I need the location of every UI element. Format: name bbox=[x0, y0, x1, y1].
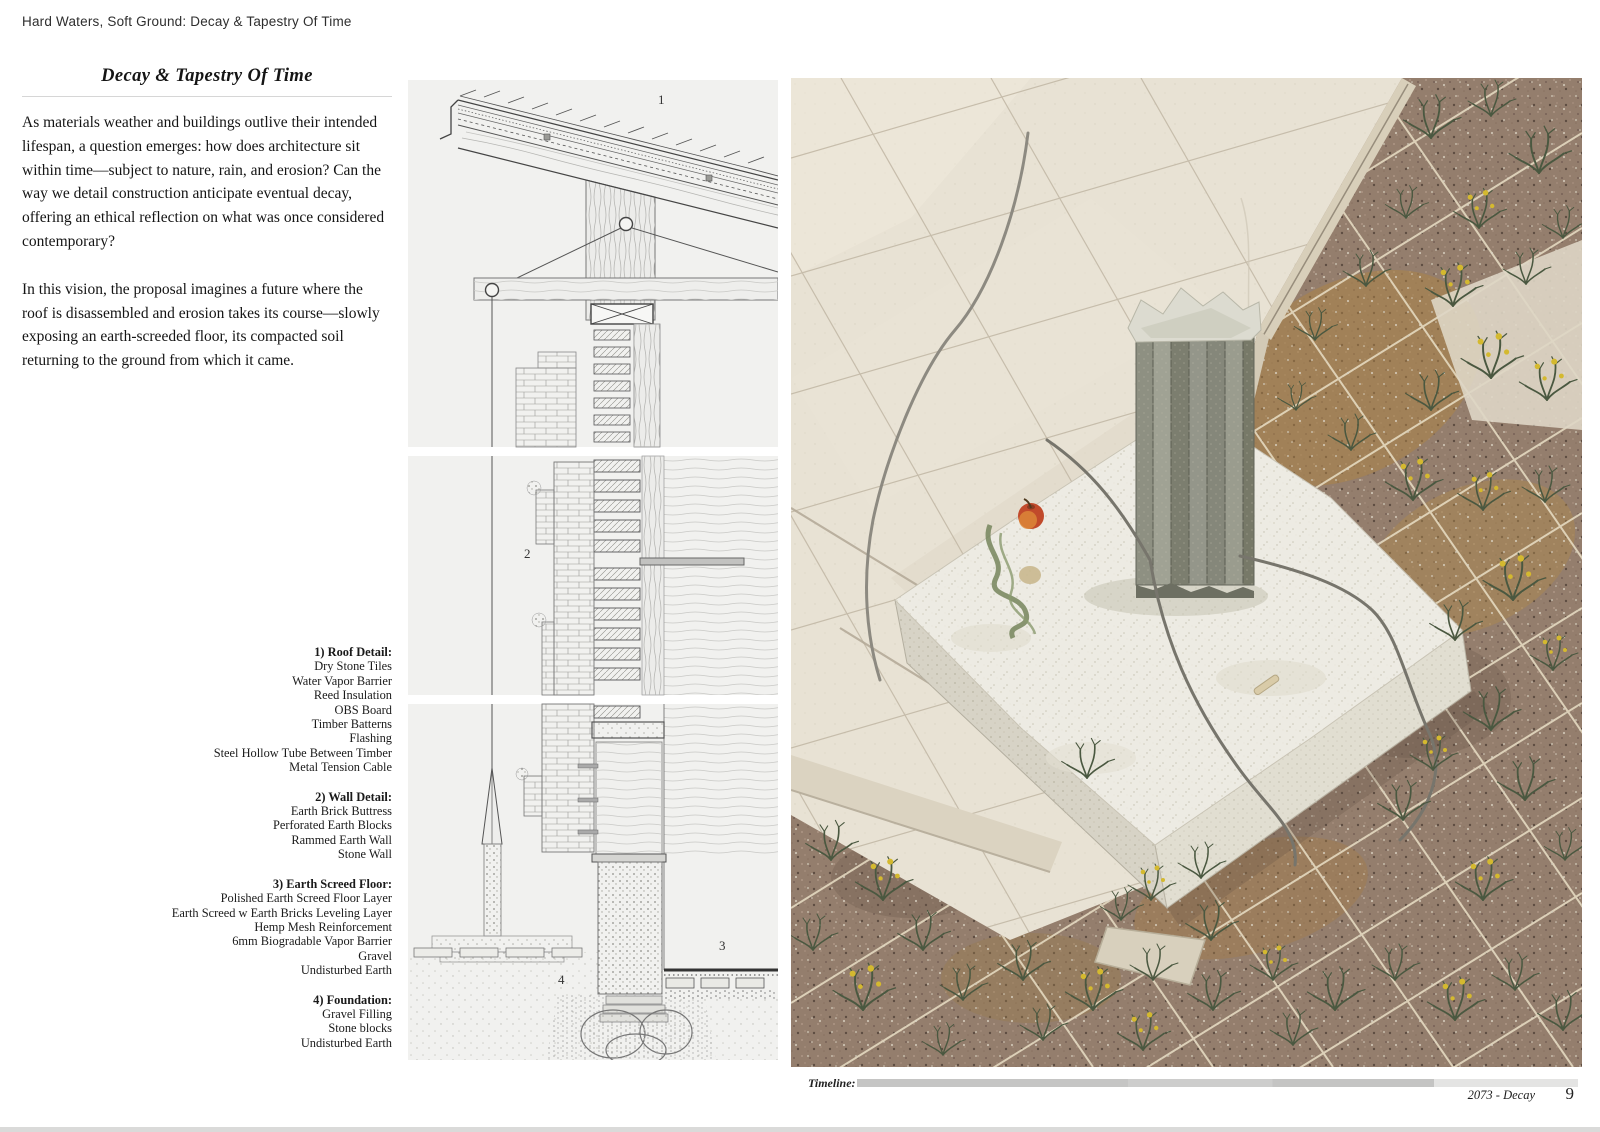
timeline: Timeline: bbox=[791, 1076, 1582, 1092]
legend-section-wall: 2) Wall Detail: Earth Brick Buttress Per… bbox=[22, 790, 392, 862]
drawing-label-1: 1 bbox=[658, 92, 665, 108]
legend-item: Perforated Earth Blocks bbox=[22, 818, 392, 832]
legend-item: Polished Earth Screed Floor Layer bbox=[22, 891, 392, 905]
legend-heading: 4) Foundation: bbox=[22, 993, 392, 1007]
legend-item: Dry Stone Tiles bbox=[22, 659, 392, 673]
legend-item: OBS Board bbox=[22, 703, 392, 717]
legend-heading: 2) Wall Detail: bbox=[22, 790, 392, 804]
legend-item: Earth Brick Buttress bbox=[22, 804, 392, 818]
section-drawing-svg bbox=[408, 80, 778, 1060]
document-header: Hard Waters, Soft Ground: Decay & Tapest… bbox=[22, 14, 352, 29]
timeline-track bbox=[857, 1079, 1578, 1087]
legend-item: Steel Hollow Tube Between Timber bbox=[22, 746, 392, 760]
legend-item: Undisturbed Earth bbox=[22, 1036, 392, 1050]
legend-item: Reed Insulation bbox=[22, 688, 392, 702]
body-paragraph: As materials weather and buildings outli… bbox=[22, 111, 392, 254]
legend-item: Timber Batterns bbox=[22, 717, 392, 731]
text-column: Decay & Tapestry Of Time As materials we… bbox=[22, 66, 392, 397]
drawing-label-2: 2 bbox=[524, 546, 531, 562]
page-title: Decay & Tapestry Of Time bbox=[22, 66, 392, 87]
timeline-label: Timeline: bbox=[808, 1076, 856, 1091]
legend-section-foundation: 4) Foundation: Gravel Filling Stone bloc… bbox=[22, 993, 392, 1051]
portfolio-page: Hard Waters, Soft Ground: Decay & Tapest… bbox=[0, 0, 1600, 1132]
detail-legend: 1) Roof Detail: Dry Stone Tiles Water Va… bbox=[22, 645, 392, 1065]
panel-foundation-detail bbox=[408, 704, 778, 1060]
legend-item: Gravel bbox=[22, 949, 392, 963]
legend-item: Gravel Filling bbox=[22, 1007, 392, 1021]
render-illustration bbox=[791, 78, 1582, 1067]
timeline-progress-fill bbox=[857, 1079, 1434, 1087]
title-divider bbox=[22, 96, 392, 97]
legend-item: Flashing bbox=[22, 731, 392, 745]
legend-item: Stone Wall bbox=[22, 847, 392, 861]
legend-item: Hemp Mesh Reinforcement bbox=[22, 920, 392, 934]
legend-item: Water Vapor Barrier bbox=[22, 674, 392, 688]
legend-item: Rammed Earth Wall bbox=[22, 833, 392, 847]
legend-heading: 3) Earth Screed Floor: bbox=[22, 877, 392, 891]
legend-item: Metal Tension Cable bbox=[22, 760, 392, 774]
drawing-label-4: 4 bbox=[558, 972, 565, 988]
legend-item: Undisturbed Earth bbox=[22, 963, 392, 977]
drawing-label-3: 3 bbox=[719, 938, 726, 954]
timeline-caption: 2073 - Decay bbox=[1468, 1088, 1535, 1103]
legend-section-roof: 1) Roof Detail: Dry Stone Tiles Water Va… bbox=[22, 645, 392, 775]
construction-detail-drawing: 1 2 3 4 bbox=[408, 80, 778, 1060]
legend-item: Earth Screed w Earth Bricks Leveling Lay… bbox=[22, 906, 392, 920]
render-svg bbox=[791, 78, 1582, 1067]
body-paragraph: In this vision, the proposal imagines a … bbox=[22, 278, 392, 373]
legend-heading: 1) Roof Detail: bbox=[22, 645, 392, 659]
panel-roof-detail bbox=[408, 80, 778, 447]
page-number: 9 bbox=[1566, 1084, 1575, 1104]
legend-item: Stone blocks bbox=[22, 1021, 392, 1035]
legend-section-floor: 3) Earth Screed Floor: Polished Earth Sc… bbox=[22, 877, 392, 978]
page-edge-strip bbox=[0, 1127, 1600, 1132]
legend-item: 6mm Biogradable Vapor Barrier bbox=[22, 934, 392, 948]
panel-wall-detail bbox=[408, 456, 778, 695]
